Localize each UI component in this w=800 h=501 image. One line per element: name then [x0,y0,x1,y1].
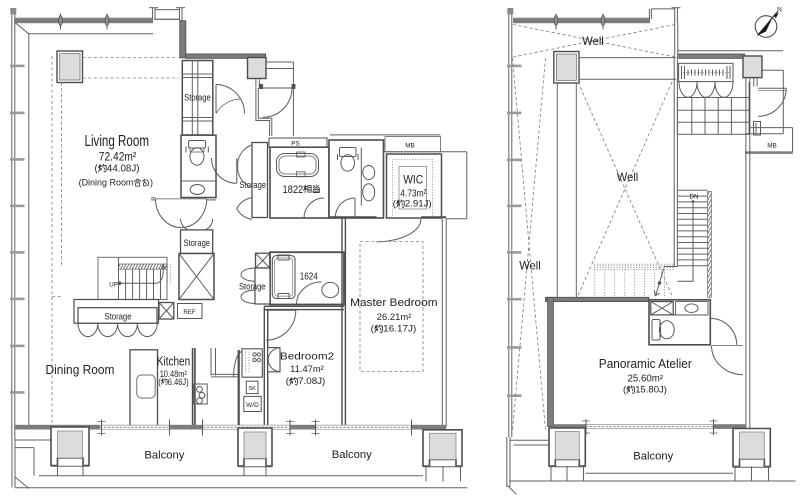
svg-text:Well: Well [582,35,604,48]
svg-text:(: ( [158,377,161,387]
svg-text:16.17J): 16.17J) [383,324,416,335]
svg-text:Dining Room: Dining Room [46,362,115,377]
svg-text:W/D: W/D [246,402,259,409]
svg-text:72.42m²: 72.42m² [99,150,137,164]
svg-text:Storage: Storage [184,92,211,102]
svg-text:1624: 1624 [300,271,318,282]
svg-text:15.80J): 15.80J) [635,385,667,396]
svg-text:Storage: Storage [105,311,132,322]
svg-text:Living Room: Living Room [85,133,150,150]
svg-text:Balcony: Balcony [332,449,372,461]
svg-text:Panoramic Atelier: Panoramic Atelier [599,356,693,371]
svg-text:(: ( [393,198,396,208]
svg-text:PS: PS [291,140,300,147]
svg-text:REF: REF [183,309,196,316]
svg-text:UP: UP [109,281,118,288]
svg-text:MB: MB [405,143,415,150]
svg-text:1822: 1822 [283,184,304,196]
svg-text:Master Bedroom: Master Bedroom [350,297,438,309]
svg-text:SK: SK [248,386,256,392]
svg-text:11.47m²: 11.47m² [290,364,324,374]
svg-text:Balcony: Balcony [144,450,184,462]
svg-text:25.60m²: 25.60m² [628,373,664,384]
svg-text:Storage: Storage [184,238,211,248]
svg-text:(Dining Room: (Dining Room [79,177,134,187]
svg-text:Well: Well [617,171,639,184]
svg-text:2.91J): 2.91J) [405,198,432,208]
svg-text:7.08J): 7.08J) [298,376,325,386]
svg-text:WIC: WIC [403,175,423,187]
svg-text:6.46J): 6.46J) [168,377,189,387]
svg-text:44.08J): 44.08J) [107,164,140,175]
svg-text:(: ( [95,164,99,175]
svg-text:): ) [150,177,153,187]
svg-text:Balcony: Balcony [633,450,673,462]
svg-text:Bedroom2: Bedroom2 [280,351,335,362]
svg-text:Well: Well [519,260,541,273]
svg-text:DN: DN [690,193,699,200]
svg-text:26.21m²: 26.21m² [377,312,412,323]
svg-text:N: N [777,7,782,14]
svg-text:Kitchen: Kitchen [157,354,190,369]
svg-text:MB: MB [767,143,777,150]
